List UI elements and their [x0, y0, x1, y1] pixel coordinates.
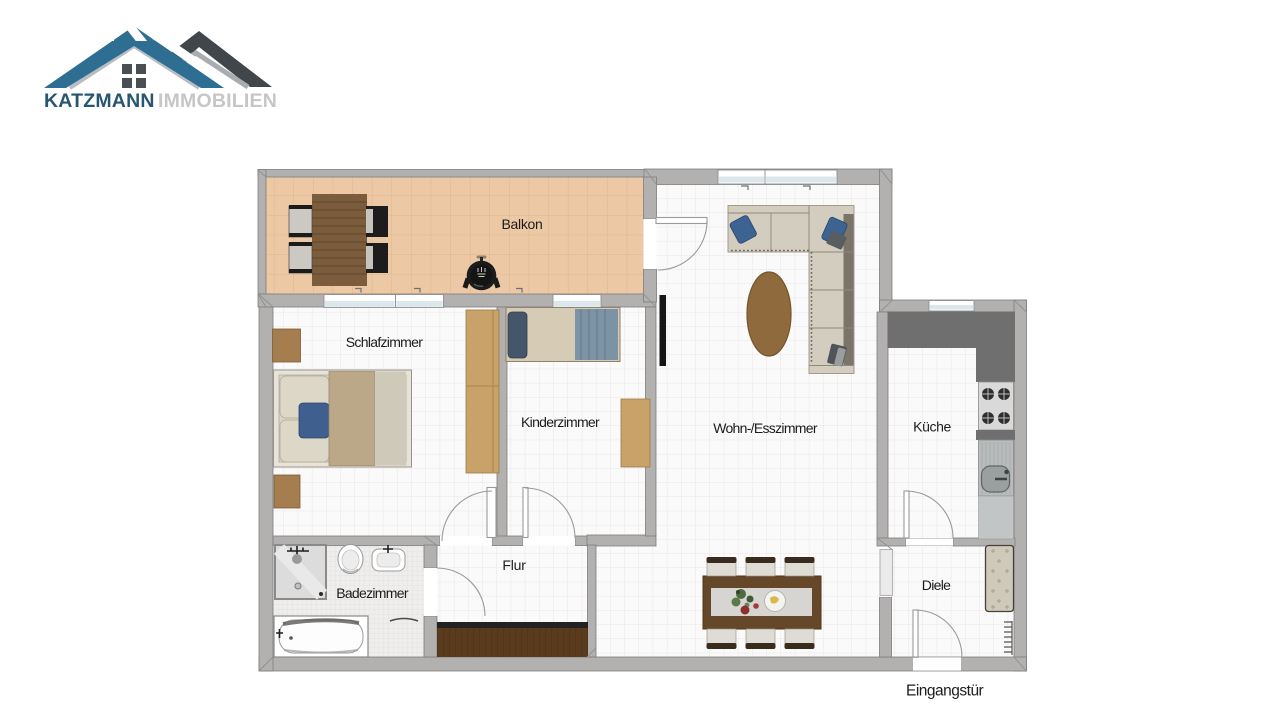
svg-text:Badezimmer: Badezimmer — [336, 585, 409, 601]
svg-text:Eingangstür: Eingangstür — [906, 683, 984, 700]
svg-text:Wohn-/Esszimmer: Wohn-/Esszimmer — [713, 420, 818, 436]
svg-text:Küche: Küche — [913, 419, 951, 435]
svg-text:Diele: Diele — [922, 577, 951, 593]
svg-text:Flur: Flur — [502, 557, 526, 573]
svg-text:IMMOBILIEN: IMMOBILIEN — [158, 90, 277, 112]
svg-text:KATZMANN: KATZMANN — [44, 90, 155, 112]
svg-text:Schlafzimmer: Schlafzimmer — [346, 334, 423, 350]
svg-text:Balkon: Balkon — [501, 216, 542, 232]
svg-text:Kinderzimmer: Kinderzimmer — [521, 414, 600, 430]
